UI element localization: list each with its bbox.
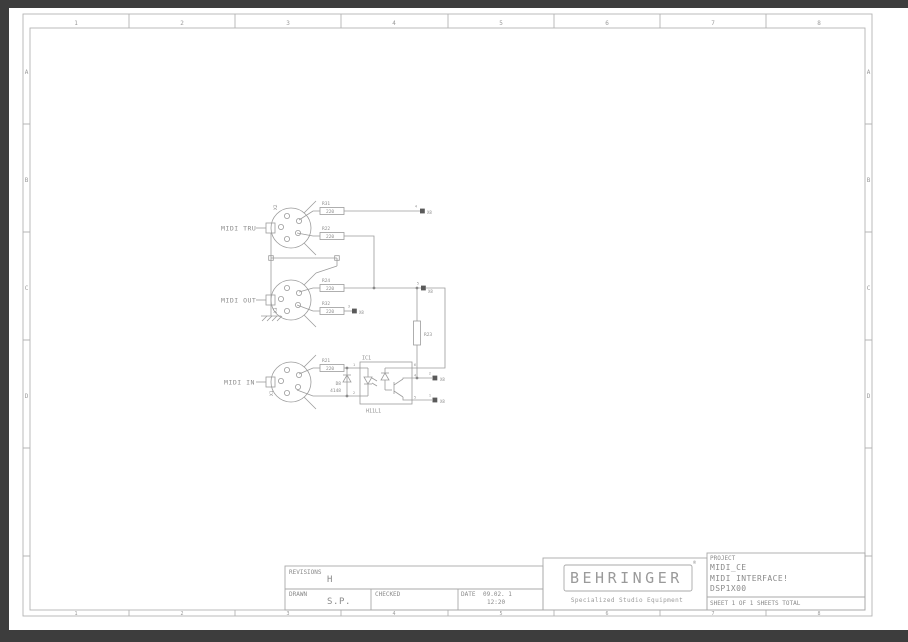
grid-column-label: 7 bbox=[711, 20, 715, 27]
resistor-ref: R21 bbox=[322, 358, 330, 364]
left-border-bar bbox=[0, 0, 9, 642]
ic-pin-number: 5 bbox=[414, 396, 416, 400]
connector-label: MIDI TRU bbox=[221, 225, 256, 233]
svg-text:3: 3 bbox=[348, 305, 350, 309]
ic-part: H11L1 bbox=[366, 409, 381, 415]
resistor-ref: R23 bbox=[424, 332, 432, 338]
resistor-value: 220 bbox=[326, 286, 334, 292]
resistor-value: 220 bbox=[326, 366, 334, 372]
project-description: MIDI INTERFACE! bbox=[710, 574, 788, 583]
grid-column-label: 2 bbox=[180, 20, 184, 27]
grid-column-label: 1 bbox=[74, 611, 77, 617]
revision-value: H bbox=[327, 575, 333, 585]
grid-column-label: 2 bbox=[180, 611, 183, 617]
drawn-label: DRAWN bbox=[289, 591, 307, 598]
grid-column-label: 4 bbox=[392, 20, 396, 27]
behringer-logo: BEHRINGER bbox=[570, 569, 683, 587]
ic-pin-number: 6 bbox=[414, 363, 416, 367]
grid-column-label: 1 bbox=[74, 20, 78, 27]
diode-ref: D8 bbox=[336, 381, 342, 387]
bottom-border-bar bbox=[0, 630, 908, 642]
grid-column-label: 4 bbox=[392, 611, 395, 617]
registered-mark: ® bbox=[693, 560, 697, 566]
diode-value: 4148 bbox=[330, 388, 341, 394]
resistor-value: 220 bbox=[326, 209, 334, 215]
resistor-value: 220 bbox=[326, 309, 334, 315]
resistor-ref: R31 bbox=[322, 201, 330, 207]
revisions-label: REVISIONS bbox=[289, 569, 322, 576]
svg-text:X8: X8 bbox=[428, 289, 433, 294]
brand-tagline: Specialized Studio Equipment bbox=[571, 597, 683, 604]
project-model: DSP1X00 bbox=[710, 584, 747, 593]
resistor-ref: R24 bbox=[322, 278, 330, 284]
schematic-sheet: 1 2 3 4 5 6 7 8 1 2 3 4 5 6 7 8 A B C D … bbox=[0, 0, 908, 642]
date-label: DATE bbox=[461, 591, 476, 598]
grid-column-label: 8 bbox=[817, 611, 820, 617]
page-background bbox=[0, 0, 908, 642]
date-value: 09.02. 1 bbox=[483, 591, 512, 598]
connector-ref: X2 bbox=[273, 204, 279, 210]
svg-text:X8: X8 bbox=[440, 377, 445, 382]
ic-pin-number: 2 bbox=[353, 391, 355, 395]
top-border-bar bbox=[0, 0, 908, 8]
drawn-value: S.P. bbox=[327, 597, 351, 607]
schematic-canvas: 1 2 3 4 5 6 7 8 1 2 3 4 5 6 7 8 A B C D … bbox=[0, 0, 908, 642]
svg-text:X8: X8 bbox=[427, 210, 432, 215]
resistor-value: 220 bbox=[326, 234, 334, 240]
connector-label: MIDI OUT bbox=[221, 297, 256, 305]
connector-label: MIDI IN bbox=[224, 379, 255, 387]
ic-pin-number: 4 bbox=[414, 374, 416, 378]
grid-row-label: A bbox=[25, 69, 29, 76]
grid-column-label: 3 bbox=[286, 611, 289, 617]
sheet-info: SHEET 1 OF 1 SHEETS TOTAL bbox=[710, 600, 801, 607]
svg-text:1: 1 bbox=[429, 394, 431, 398]
checked-label: CHECKED bbox=[375, 591, 401, 598]
resistor-ref: R22 bbox=[322, 226, 330, 232]
grid-row-label: D bbox=[25, 393, 29, 400]
grid-row-label: D bbox=[867, 393, 871, 400]
grid-column-label: 5 bbox=[499, 611, 502, 617]
grid-column-label: 6 bbox=[605, 20, 609, 27]
svg-text:X8: X8 bbox=[359, 310, 364, 315]
time-value: 12:20 bbox=[487, 599, 505, 606]
svg-text:X8: X8 bbox=[440, 399, 445, 404]
grid-row-label: B bbox=[867, 177, 871, 184]
grid-row-label: C bbox=[25, 285, 29, 292]
svg-text:5: 5 bbox=[417, 282, 419, 286]
grid-column-label: 3 bbox=[286, 20, 290, 27]
grid-row-label: A bbox=[867, 69, 871, 76]
grid-column-label: 5 bbox=[499, 20, 503, 27]
connector-ref: X3 bbox=[273, 307, 279, 313]
grid-column-label: 8 bbox=[817, 20, 821, 27]
project-label: PROJECT bbox=[710, 555, 736, 562]
grid-column-label: 6 bbox=[605, 611, 608, 617]
ic-ref: IC1 bbox=[362, 356, 371, 362]
project-name: MIDI_CE bbox=[710, 563, 747, 572]
connector-ref: X1 bbox=[269, 390, 275, 396]
svg-text:2: 2 bbox=[429, 372, 431, 376]
ic-pin-number: 1 bbox=[353, 363, 355, 367]
grid-row-label: C bbox=[867, 285, 871, 292]
resistor-ref: R32 bbox=[322, 301, 330, 307]
grid-row-label: B bbox=[25, 177, 29, 184]
svg-text:4: 4 bbox=[415, 205, 417, 209]
grid-column-label: 7 bbox=[711, 611, 714, 617]
